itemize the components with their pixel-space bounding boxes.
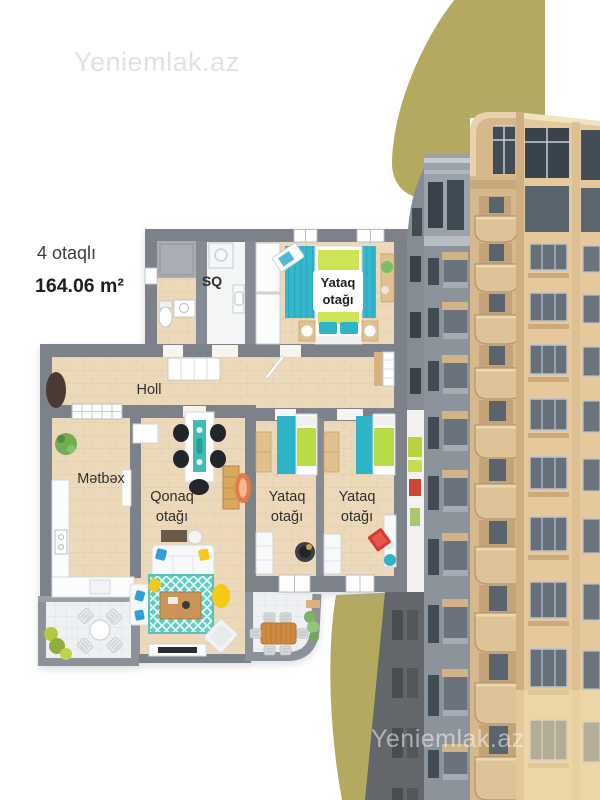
svg-text:164.06 m²: 164.06 m² xyxy=(35,275,124,297)
svg-text:Yataq: Yataq xyxy=(269,489,306,505)
svg-text:Yataq: Yataq xyxy=(339,489,376,505)
svg-text:Yeniemlak.az: Yeniemlak.az xyxy=(74,47,240,77)
svg-text:Yataq: Yataq xyxy=(321,275,356,290)
svg-text:otağı: otağı xyxy=(156,509,188,525)
svg-text:Qonaq: Qonaq xyxy=(150,489,194,505)
svg-text:otağı: otağı xyxy=(322,292,353,307)
svg-text:SQ: SQ xyxy=(202,273,222,289)
svg-text:Yeniemlak.az: Yeniemlak.az xyxy=(371,725,525,753)
svg-text:Holl: Holl xyxy=(137,382,162,398)
svg-text:4 otaqlı: 4 otaqlı xyxy=(37,243,96,263)
svg-text:otağı: otağı xyxy=(341,509,373,525)
svg-text:otağı: otağı xyxy=(271,509,303,525)
svg-text:Mətbəx: Mətbəx xyxy=(77,471,125,487)
